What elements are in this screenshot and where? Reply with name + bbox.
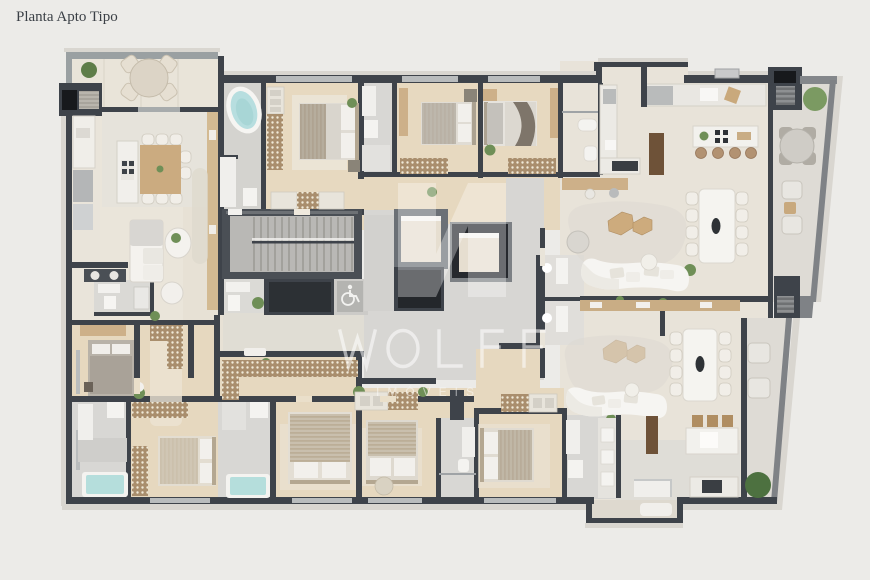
svg-text:Planta Apto Tipo: Planta Apto Tipo — [16, 9, 118, 25]
svg-text:IMÓVEIS: IMÓVEIS — [376, 384, 482, 399]
